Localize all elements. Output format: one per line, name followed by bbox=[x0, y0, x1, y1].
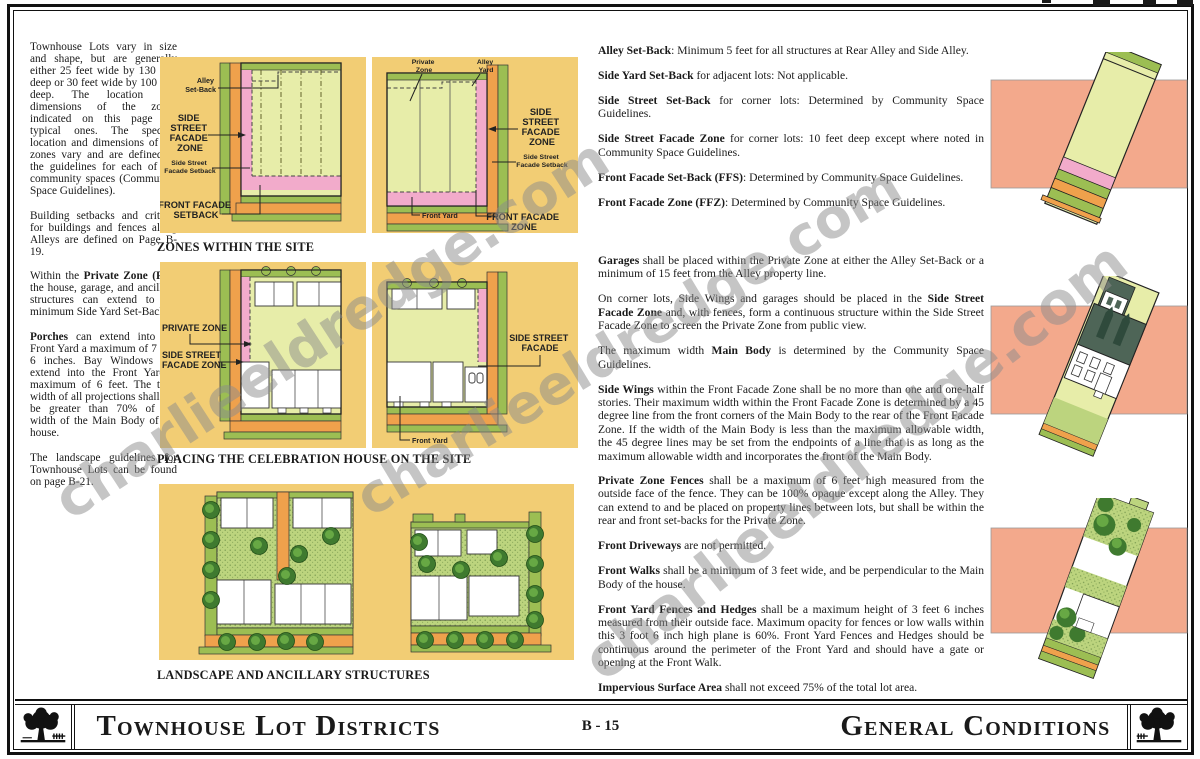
side-street-facade-zone-label: SIDE STREET FACADE ZONE bbox=[162, 350, 227, 370]
paragraph: Building setbacks and criteria for build… bbox=[30, 211, 177, 259]
front-facade-zone-strip bbox=[387, 192, 487, 206]
footer-page-number: B - 15 bbox=[75, 718, 1127, 735]
scan-artifact bbox=[1093, 0, 1110, 6]
side-street-verge bbox=[220, 63, 230, 214]
setback-rules-text: Alley Set-Back: Minimum 5 feet for all s… bbox=[598, 44, 984, 221]
zones-diagram-left: Alley Set-Back SIDE STREET FACADE ZONE S… bbox=[160, 57, 366, 233]
alley-strip bbox=[241, 63, 341, 70]
tree-logo-icon bbox=[1133, 706, 1185, 748]
paragraph: Townhouse Lots vary in size and shape, b… bbox=[30, 42, 177, 198]
alley-yard-label: Alley Yard bbox=[477, 59, 495, 74]
footer-band: Townhouse Lot Districts B - 15 General C… bbox=[15, 699, 1187, 749]
paragraph: Side Wings within the Front Facade Zone … bbox=[598, 383, 984, 464]
paragraph: Side Yard Set-Back for adjacent lots: No… bbox=[598, 69, 984, 82]
footer-right-logo bbox=[1131, 705, 1187, 749]
scan-artifact bbox=[1143, 0, 1156, 5]
house-footprint bbox=[272, 370, 341, 408]
side-street-facade-setback-label: Side Street Facade Setback bbox=[516, 154, 568, 169]
paragraph: Impervious Surface Area shall not exceed… bbox=[598, 681, 984, 694]
house-footprint bbox=[387, 362, 431, 402]
placing-diagram-right: SIDE STREET FACADE Front Yard bbox=[372, 262, 578, 448]
paragraph: Side Street Set-Back for corner lots: De… bbox=[598, 94, 984, 121]
tree-logo-icon bbox=[17, 706, 69, 748]
paragraph: Side Street Facade Zone for corner lots:… bbox=[598, 132, 984, 159]
garage-structure bbox=[465, 367, 487, 402]
paragraph: The maximum width Main Body is determine… bbox=[598, 344, 984, 371]
side-street-facade-zone-strip bbox=[241, 70, 252, 176]
paragraph: Front Facade Zone (FFZ): Determined by C… bbox=[598, 196, 984, 209]
garage-footprint bbox=[447, 289, 475, 309]
garage-sidewing-rules-text: Garages shall be placed within the Priva… bbox=[598, 254, 984, 475]
side-street-facade-zone-strip bbox=[476, 80, 487, 192]
paragraph: The landscape guidelines for Townhouse L… bbox=[30, 453, 177, 489]
paragraph: Front Yard Fences and Hedges shall be a … bbox=[598, 603, 984, 670]
paragraph: Garages shall be placed within the Priva… bbox=[598, 254, 984, 281]
alley-strip bbox=[387, 73, 487, 80]
paragraph: Alley Set-Back: Minimum 5 feet for all s… bbox=[598, 44, 984, 57]
left-text-column: Townhouse Lots vary in size and shape, b… bbox=[30, 42, 177, 502]
scan-artifact bbox=[1177, 0, 1193, 6]
garage-door-icon bbox=[469, 373, 475, 383]
paragraph: On corner lots, Side Wings and garages s… bbox=[598, 292, 984, 332]
side-street-pavement bbox=[230, 63, 241, 214]
house-footprint bbox=[433, 362, 463, 402]
placing-diagram-left: PRIVATE ZONE SIDE STREET FACADE ZONE bbox=[160, 262, 366, 448]
garage-door-icon bbox=[477, 373, 483, 383]
house-on-lot-illustration bbox=[985, 276, 1190, 462]
zones-diagram-right: Private Zone Alley Yard SIDE STREET FACA… bbox=[372, 57, 578, 233]
landscape-caption: LANDSCAPE AND ANCILLARY STRUCTURES bbox=[157, 668, 430, 683]
private-zone-label: PRIVATE ZONE bbox=[162, 323, 227, 333]
lot-block bbox=[387, 73, 487, 206]
side-street-facade-zone-strip bbox=[478, 289, 487, 362]
paragraph: Front Walks shall be a minimum of 3 feet… bbox=[598, 564, 984, 591]
lot-zones-strip-illustration bbox=[985, 52, 1190, 230]
fence-surface-rules-text: Private Zone Fences shall be a maximum o… bbox=[598, 474, 984, 706]
side-street-facade-zone-strip bbox=[241, 277, 250, 362]
lot-landscape-illustration bbox=[985, 498, 1190, 684]
paragraph: Within the Private Zone (PZ), the house,… bbox=[30, 271, 177, 319]
front-street-pavement bbox=[236, 203, 341, 214]
footer-left-logo bbox=[15, 705, 71, 749]
placing-caption: PLACING THE CELEBRATION HOUSE ON THE SIT… bbox=[157, 452, 471, 467]
side-street-facade-setback-label: Side Street Facade Setback bbox=[164, 160, 216, 175]
scan-artifact bbox=[1042, 0, 1051, 3]
front-yard-label: Front Yard bbox=[422, 211, 458, 220]
paragraph: Front Driveways are not permitted. bbox=[598, 539, 984, 552]
paragraph: Porches can extend into the Front Yard a… bbox=[30, 332, 177, 440]
pattern-book-page: Townhouse Lots vary in size and shape, b… bbox=[0, 0, 1200, 759]
front-facade-zone-strip bbox=[241, 176, 341, 190]
front-yard-label: Front Yard bbox=[412, 436, 448, 445]
paragraph: Private Zone Fences shall be a maximum o… bbox=[598, 474, 984, 528]
zones-caption: ZONES WITHIN THE SITE bbox=[157, 240, 314, 255]
landscape-diagram bbox=[159, 484, 574, 660]
paragraph: Front Facade Set-Back (FFS): Determined … bbox=[598, 171, 984, 184]
house-footprint bbox=[241, 362, 269, 408]
